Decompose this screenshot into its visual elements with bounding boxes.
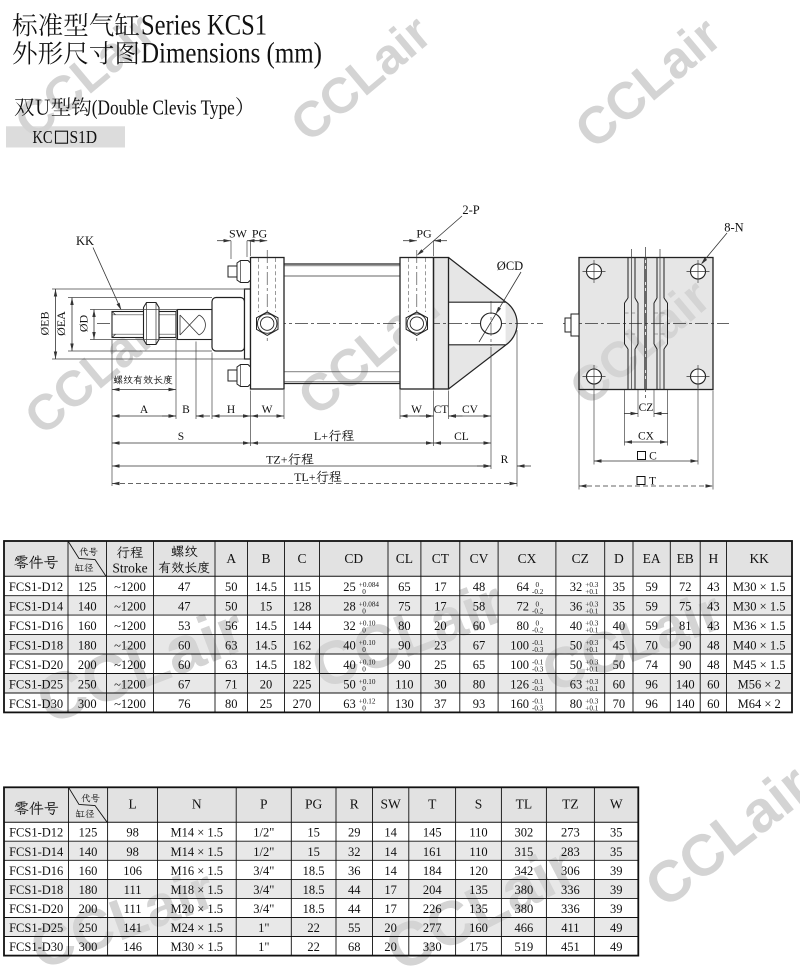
svg-text:R: R: [350, 797, 359, 812]
svg-text:225: 225: [293, 677, 312, 691]
svg-text:A: A: [140, 404, 149, 416]
svg-text:18.5: 18.5: [303, 883, 325, 897]
svg-text:40: 40: [343, 638, 356, 652]
svg-text:FCS1-D16: FCS1-D16: [9, 619, 63, 633]
svg-text:50: 50: [225, 600, 238, 614]
svg-text:C: C: [649, 451, 657, 463]
svg-text:68: 68: [348, 940, 361, 954]
svg-text:FCS1-D30: FCS1-D30: [9, 940, 63, 954]
svg-text:FCS1-D20: FCS1-D20: [9, 902, 63, 916]
svg-text:+0.1: +0.1: [585, 705, 598, 713]
svg-text:14.5: 14.5: [255, 580, 277, 594]
svg-text:M56 × 2: M56 × 2: [738, 677, 781, 691]
svg-text:W: W: [262, 404, 273, 416]
svg-text:25: 25: [260, 697, 273, 711]
svg-text:N: N: [192, 797, 202, 812]
svg-text:CD: CD: [344, 551, 363, 566]
svg-text:CL: CL: [396, 551, 413, 566]
svg-text:56: 56: [225, 619, 238, 633]
svg-text:SW: SW: [229, 227, 248, 241]
svg-text:226: 226: [423, 902, 442, 916]
svg-text:ØCD: ØCD: [497, 259, 523, 273]
svg-text:M64 × 2: M64 × 2: [738, 697, 781, 711]
svg-text:29: 29: [348, 826, 361, 840]
svg-text:140: 140: [78, 600, 97, 614]
svg-text:75: 75: [398, 600, 411, 614]
svg-text:CV: CV: [470, 551, 489, 566]
svg-text:96: 96: [645, 697, 658, 711]
svg-text:135: 135: [469, 883, 488, 897]
svg-text:H: H: [227, 404, 235, 416]
svg-text:75: 75: [679, 600, 692, 614]
svg-text:160: 160: [510, 697, 529, 711]
svg-text:140: 140: [676, 677, 695, 691]
svg-text:80: 80: [570, 697, 583, 711]
svg-text:P: P: [260, 797, 268, 812]
svg-text:175: 175: [469, 940, 488, 954]
svg-text:60: 60: [178, 638, 191, 652]
svg-text:67: 67: [178, 677, 191, 691]
svg-text:~1200: ~1200: [114, 600, 146, 614]
svg-text:96: 96: [645, 677, 658, 691]
svg-text:17: 17: [434, 580, 447, 594]
svg-text:M18 × 1.5: M18 × 1.5: [171, 883, 224, 897]
svg-text:59: 59: [645, 619, 658, 633]
svg-text:74: 74: [645, 658, 658, 672]
svg-text:63: 63: [225, 638, 238, 652]
svg-text:~1200: ~1200: [114, 677, 146, 691]
svg-text:60: 60: [178, 658, 191, 672]
svg-text:+0.1: +0.1: [585, 646, 598, 654]
svg-text:15: 15: [307, 826, 320, 840]
svg-text:180: 180: [78, 638, 97, 652]
svg-text:40: 40: [343, 658, 356, 672]
svg-text:TZ+: TZ+: [266, 453, 288, 467]
svg-text:22: 22: [307, 921, 320, 935]
svg-text:35: 35: [610, 845, 623, 859]
svg-text:65: 65: [398, 580, 411, 594]
svg-text:106: 106: [123, 864, 142, 878]
svg-text:43: 43: [707, 600, 720, 614]
svg-text:43: 43: [707, 580, 720, 594]
svg-text:300: 300: [79, 940, 98, 954]
svg-text:FCS1-D12: FCS1-D12: [9, 580, 63, 594]
svg-text:67: 67: [473, 638, 486, 652]
svg-text:~1200: ~1200: [114, 619, 146, 633]
svg-text:M40 × 1.5: M40 × 1.5: [733, 638, 786, 652]
svg-text:R: R: [501, 454, 509, 466]
svg-text:250: 250: [78, 677, 97, 691]
svg-text:20: 20: [384, 921, 397, 935]
svg-text:0: 0: [362, 646, 366, 654]
svg-text:141: 141: [123, 921, 142, 935]
svg-text:36: 36: [570, 600, 583, 614]
svg-text:FCS1-D18: FCS1-D18: [9, 638, 63, 652]
svg-text:0: 0: [362, 705, 366, 713]
svg-text:63: 63: [225, 658, 238, 672]
svg-text:M30 × 1.5: M30 × 1.5: [733, 580, 786, 594]
svg-text:CZ: CZ: [572, 551, 589, 566]
svg-text:32: 32: [570, 580, 583, 594]
svg-text:277: 277: [423, 921, 442, 935]
svg-text:72: 72: [679, 580, 692, 594]
svg-text:98: 98: [126, 845, 139, 859]
svg-text:146: 146: [123, 940, 142, 954]
svg-text:CT: CT: [432, 551, 450, 566]
svg-text:60: 60: [613, 677, 626, 691]
svg-text:2-P: 2-P: [462, 203, 479, 217]
svg-text:130: 130: [395, 697, 414, 711]
svg-text:-0.2: -0.2: [532, 607, 544, 615]
svg-text:17: 17: [384, 883, 397, 897]
svg-text:35: 35: [613, 600, 626, 614]
svg-text:71: 71: [225, 677, 238, 691]
svg-text:45: 45: [613, 638, 626, 652]
svg-text:-0.2: -0.2: [532, 627, 544, 635]
svg-text:23: 23: [434, 638, 447, 652]
svg-text:KC: KC: [33, 127, 53, 147]
svg-text:80: 80: [473, 677, 486, 691]
svg-text:380: 380: [515, 902, 534, 916]
svg-text:81: 81: [679, 619, 692, 633]
svg-text:140: 140: [79, 845, 98, 859]
svg-text:TL+: TL+: [294, 470, 316, 484]
svg-text:-0.3: -0.3: [532, 705, 544, 713]
svg-text:182: 182: [293, 658, 312, 672]
svg-text:160: 160: [469, 921, 488, 935]
svg-text:FCS1-D18: FCS1-D18: [9, 883, 63, 897]
svg-text:49: 49: [610, 940, 623, 954]
svg-text:48: 48: [707, 638, 720, 652]
svg-text:ØEA: ØEA: [54, 311, 68, 336]
svg-text:48: 48: [473, 580, 486, 594]
svg-text:72: 72: [517, 600, 530, 614]
svg-text:PG: PG: [252, 227, 268, 241]
svg-text:63: 63: [343, 697, 356, 711]
svg-text:CL: CL: [454, 431, 469, 443]
svg-text:336: 336: [561, 902, 580, 916]
svg-text:14.5: 14.5: [255, 638, 277, 652]
svg-text:126: 126: [510, 677, 529, 691]
svg-text:342: 342: [515, 864, 534, 878]
svg-text:~1200: ~1200: [114, 658, 146, 672]
svg-text:KK: KK: [76, 234, 94, 248]
svg-text:411: 411: [561, 921, 579, 935]
svg-text:161: 161: [423, 845, 442, 859]
svg-text:20: 20: [384, 940, 397, 954]
svg-text:55: 55: [348, 921, 361, 935]
svg-text:35: 35: [610, 826, 623, 840]
svg-text:50: 50: [343, 677, 356, 691]
svg-text:CZ: CZ: [639, 402, 654, 414]
svg-text:204: 204: [423, 883, 443, 897]
svg-text:80: 80: [225, 697, 238, 711]
svg-text:8-N: 8-N: [724, 221, 743, 235]
svg-text:53: 53: [178, 619, 191, 633]
svg-text:125: 125: [79, 826, 98, 840]
svg-text:47: 47: [178, 580, 191, 594]
svg-text:32: 32: [343, 619, 356, 633]
svg-text:~1200: ~1200: [114, 697, 146, 711]
svg-text:14: 14: [384, 864, 397, 878]
svg-text:1": 1": [258, 940, 269, 954]
svg-text:FCS1-D16: FCS1-D16: [9, 864, 63, 878]
svg-text:90: 90: [398, 638, 411, 652]
svg-text:200: 200: [79, 902, 98, 916]
svg-text:184: 184: [423, 864, 443, 878]
svg-text:145: 145: [423, 826, 442, 840]
svg-text:0: 0: [362, 607, 366, 615]
svg-text:14: 14: [384, 826, 397, 840]
svg-text:A: A: [226, 551, 236, 566]
svg-text:283: 283: [561, 845, 580, 859]
svg-text:FCS1-D20: FCS1-D20: [9, 658, 63, 672]
svg-text:ØD: ØD: [77, 315, 91, 333]
svg-text:115: 115: [293, 580, 311, 594]
svg-text:EA: EA: [643, 551, 661, 566]
svg-text:44: 44: [348, 883, 361, 897]
svg-text:~1200: ~1200: [114, 580, 146, 594]
svg-text:39: 39: [610, 864, 623, 878]
svg-text:L: L: [128, 797, 136, 812]
svg-text:C: C: [297, 551, 306, 566]
svg-text:14: 14: [384, 845, 397, 859]
svg-text:SW: SW: [380, 797, 401, 812]
svg-text:20: 20: [434, 619, 447, 633]
svg-text:0: 0: [362, 666, 366, 674]
svg-text:58: 58: [473, 600, 486, 614]
svg-text:PG: PG: [416, 227, 432, 241]
svg-text:CX: CX: [518, 551, 537, 566]
svg-text:125: 125: [78, 580, 97, 594]
svg-text:76: 76: [178, 697, 191, 711]
svg-text:60: 60: [707, 677, 720, 691]
svg-text:39: 39: [610, 902, 623, 916]
svg-text:380: 380: [515, 883, 534, 897]
svg-text:466: 466: [515, 921, 534, 935]
svg-text:110: 110: [395, 677, 413, 691]
svg-text:110: 110: [469, 845, 487, 859]
svg-text:M30 × 1.5: M30 × 1.5: [733, 600, 786, 614]
svg-text:43: 43: [707, 619, 720, 633]
svg-text:M36 × 1.5: M36 × 1.5: [733, 619, 786, 633]
svg-text:160: 160: [79, 864, 98, 878]
svg-text:315: 315: [515, 845, 534, 859]
svg-text:140: 140: [676, 697, 695, 711]
svg-text:T: T: [649, 476, 656, 488]
svg-text:50: 50: [570, 638, 583, 652]
svg-text:40: 40: [570, 619, 583, 633]
svg-text:64: 64: [517, 580, 530, 594]
svg-text:120: 120: [469, 864, 488, 878]
svg-text:49: 49: [610, 921, 623, 935]
svg-text:28: 28: [343, 600, 356, 614]
svg-text:CT: CT: [434, 404, 449, 416]
svg-text:TL: TL: [516, 797, 533, 812]
svg-text:100: 100: [510, 638, 529, 652]
svg-text:17: 17: [384, 902, 397, 916]
svg-text:47: 47: [178, 600, 191, 614]
svg-text:37: 37: [434, 697, 447, 711]
svg-text:100: 100: [510, 658, 529, 672]
svg-text:18.5: 18.5: [303, 864, 325, 878]
svg-text:22: 22: [307, 940, 320, 954]
svg-text:M20 × 1.5: M20 × 1.5: [171, 902, 224, 916]
svg-text:3/4": 3/4": [253, 883, 274, 897]
svg-text:80: 80: [517, 619, 530, 633]
svg-text:32: 32: [348, 845, 361, 859]
svg-text:25: 25: [434, 658, 447, 672]
svg-text:D: D: [614, 551, 624, 566]
svg-text:-0.3: -0.3: [532, 646, 544, 654]
svg-text:L+: L+: [314, 429, 328, 443]
svg-text:93: 93: [473, 697, 486, 711]
svg-text:1": 1": [258, 921, 269, 935]
svg-text:162: 162: [293, 638, 312, 652]
svg-text:60: 60: [473, 619, 486, 633]
svg-text:H: H: [709, 551, 719, 566]
svg-text:111: 111: [124, 883, 142, 897]
svg-text:44: 44: [348, 902, 361, 916]
svg-text:90: 90: [679, 638, 692, 652]
svg-text:144: 144: [293, 619, 313, 633]
svg-text:18.5: 18.5: [303, 902, 325, 916]
svg-text:70: 70: [613, 697, 626, 711]
svg-text:FCS1-D25: FCS1-D25: [9, 921, 63, 935]
svg-text:3/4": 3/4": [253, 864, 274, 878]
svg-text:80: 80: [398, 619, 411, 633]
svg-text:50: 50: [225, 580, 238, 594]
svg-text:273: 273: [561, 826, 580, 840]
svg-text:135: 135: [469, 902, 488, 916]
svg-text:98: 98: [126, 826, 139, 840]
svg-text:0: 0: [362, 588, 366, 596]
svg-text:~1200: ~1200: [114, 638, 146, 652]
svg-text:250: 250: [79, 921, 98, 935]
svg-text:451: 451: [561, 940, 580, 954]
svg-text:M30 × 1.5: M30 × 1.5: [171, 940, 224, 954]
svg-text:48: 48: [707, 658, 720, 672]
svg-text:+0.1: +0.1: [585, 627, 598, 635]
svg-text:+0.1: +0.1: [585, 666, 598, 674]
svg-text:17: 17: [434, 600, 447, 614]
svg-text:302: 302: [515, 826, 534, 840]
svg-text:M14 × 1.5: M14 × 1.5: [171, 826, 224, 840]
svg-text:T: T: [428, 797, 437, 812]
svg-text:ØEB: ØEB: [38, 312, 52, 336]
svg-text:B: B: [261, 551, 270, 566]
svg-text:0: 0: [362, 685, 366, 693]
svg-text:FCS1-D25: FCS1-D25: [9, 677, 63, 691]
svg-text:+0.1: +0.1: [585, 607, 598, 615]
svg-text:EB: EB: [677, 551, 694, 566]
svg-text:59: 59: [645, 580, 658, 594]
svg-text:W: W: [411, 404, 422, 416]
svg-text:36: 36: [348, 864, 361, 878]
svg-text:330: 330: [423, 940, 442, 954]
svg-text:25: 25: [343, 580, 356, 594]
svg-text:Stroke: Stroke: [112, 561, 147, 576]
svg-text:160: 160: [78, 619, 97, 633]
svg-text:KK: KK: [749, 551, 769, 566]
svg-text:1/2": 1/2": [253, 845, 274, 859]
svg-text:M45 × 1.5: M45 × 1.5: [733, 658, 786, 672]
svg-text:S: S: [475, 797, 483, 812]
svg-text:35: 35: [613, 580, 626, 594]
svg-text:40: 40: [613, 619, 626, 633]
svg-text:M16 × 1.5: M16 × 1.5: [171, 864, 224, 878]
svg-text:128: 128: [293, 600, 312, 614]
svg-text:Dimensions (mm): Dimensions (mm): [141, 37, 322, 70]
svg-text:110: 110: [469, 826, 487, 840]
svg-text:S: S: [178, 431, 184, 443]
svg-text:15: 15: [307, 845, 320, 859]
svg-text:30: 30: [434, 677, 447, 691]
svg-text:59: 59: [645, 600, 658, 614]
svg-text:60: 60: [707, 697, 720, 711]
svg-text:M24 × 1.5: M24 × 1.5: [171, 921, 224, 935]
svg-text:FCS1-D30: FCS1-D30: [9, 697, 63, 711]
svg-text:3/4": 3/4": [253, 902, 274, 916]
svg-text:63: 63: [570, 677, 583, 691]
svg-text:FCS1-D12: FCS1-D12: [9, 826, 63, 840]
svg-text:-0.2: -0.2: [532, 588, 544, 596]
svg-text:W: W: [610, 797, 623, 812]
svg-text:B: B: [182, 404, 190, 416]
svg-text:FCS1-D14: FCS1-D14: [9, 600, 64, 614]
svg-text:+0.1: +0.1: [585, 685, 598, 693]
svg-text:50: 50: [613, 658, 626, 672]
svg-text:180: 180: [79, 883, 98, 897]
svg-text:336: 336: [561, 883, 580, 897]
svg-text:CX: CX: [638, 431, 655, 443]
svg-text:300: 300: [78, 697, 97, 711]
svg-text:CV: CV: [462, 404, 479, 416]
svg-text:0: 0: [362, 627, 366, 635]
svg-text:65: 65: [473, 658, 486, 672]
svg-text:50: 50: [570, 658, 583, 672]
svg-text:200: 200: [78, 658, 97, 672]
svg-text:111: 111: [124, 902, 142, 916]
svg-text:270: 270: [293, 697, 312, 711]
svg-text:519: 519: [515, 940, 534, 954]
svg-text:TZ: TZ: [562, 797, 579, 812]
svg-text:1/2": 1/2": [253, 826, 274, 840]
svg-text:306: 306: [561, 864, 580, 878]
svg-text:PG: PG: [305, 797, 323, 812]
svg-text:15: 15: [260, 600, 273, 614]
svg-text:-0.3: -0.3: [532, 666, 544, 674]
svg-text:90: 90: [679, 658, 692, 672]
svg-text:14.5: 14.5: [255, 619, 277, 633]
svg-text:39: 39: [610, 883, 623, 897]
svg-text:90: 90: [398, 658, 411, 672]
svg-text:M14 × 1.5: M14 × 1.5: [171, 845, 224, 859]
svg-text:-0.3: -0.3: [532, 685, 544, 693]
svg-text:14.5: 14.5: [255, 658, 277, 672]
svg-text:(Double Clevis Type: (Double Clevis Type: [92, 96, 235, 120]
svg-text:70: 70: [645, 638, 658, 652]
svg-text:20: 20: [260, 677, 273, 691]
svg-text:S1D: S1D: [70, 127, 98, 147]
svg-text:FCS1-D14: FCS1-D14: [9, 845, 64, 859]
svg-text:+0.1: +0.1: [585, 588, 598, 596]
